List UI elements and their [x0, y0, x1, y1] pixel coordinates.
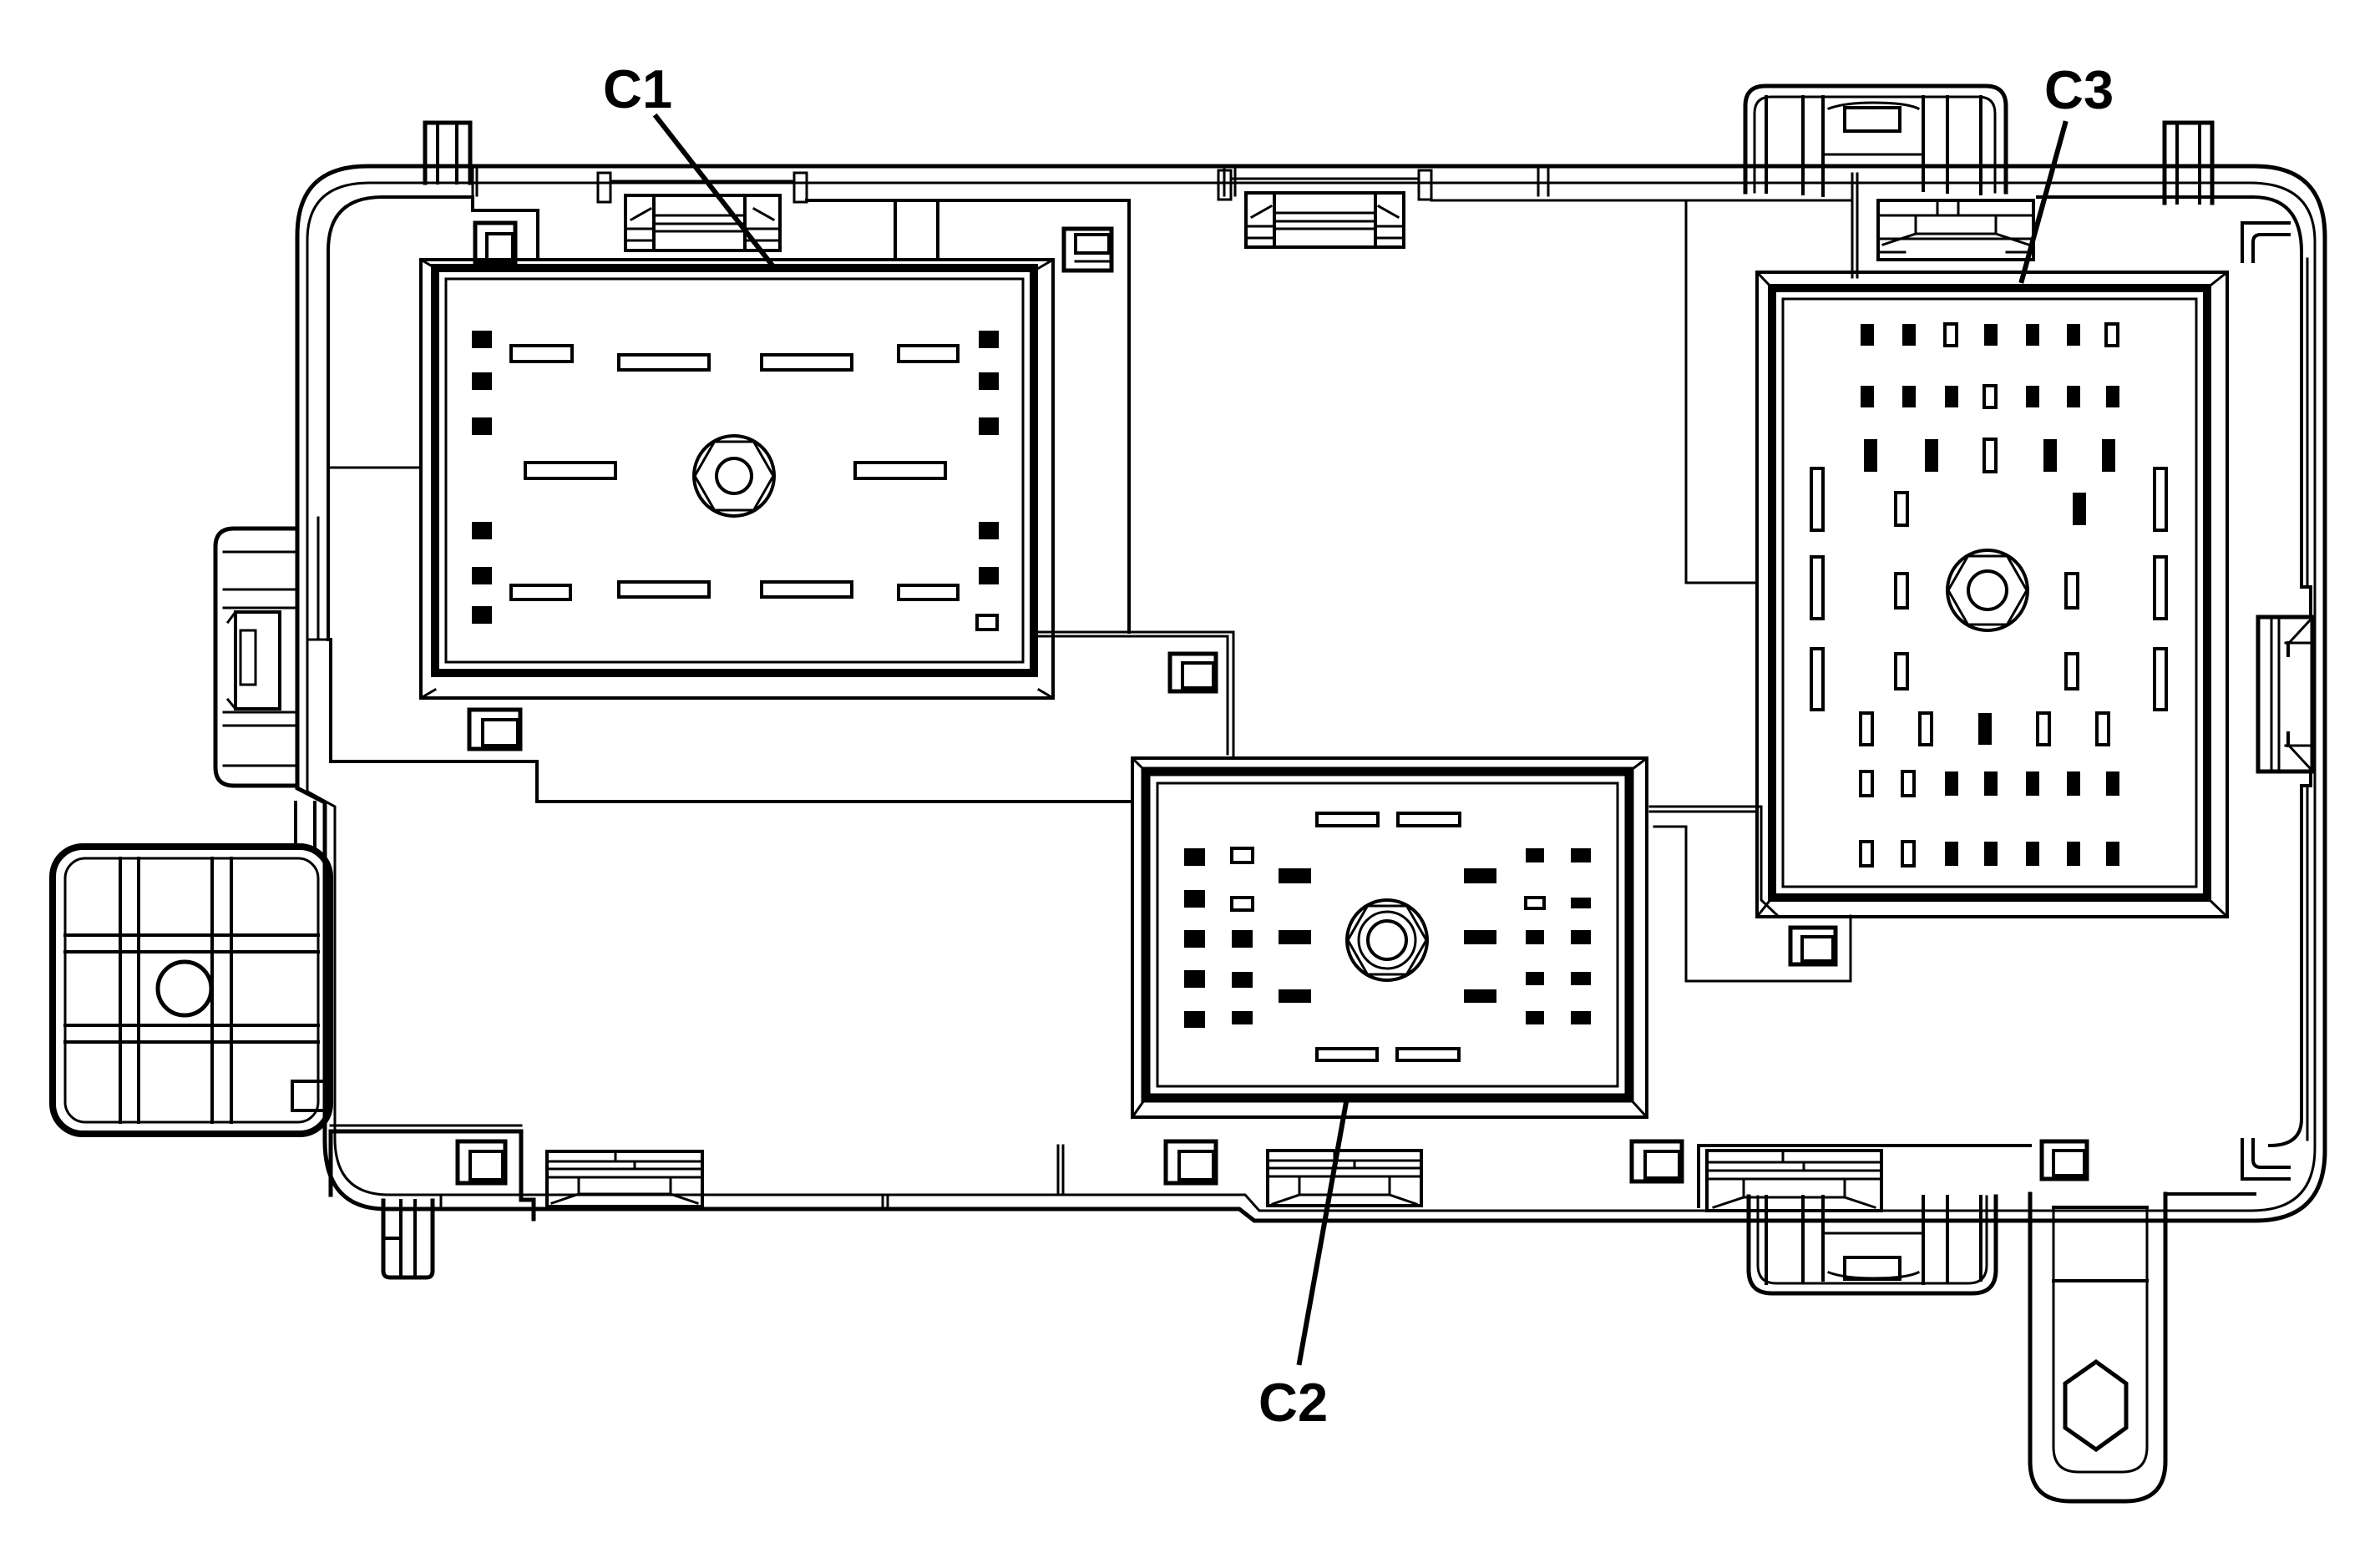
- svg-text:C2: C2: [1258, 1372, 1328, 1433]
- svg-text:C3: C3: [2044, 59, 2114, 120]
- svg-text:C1: C1: [603, 58, 672, 119]
